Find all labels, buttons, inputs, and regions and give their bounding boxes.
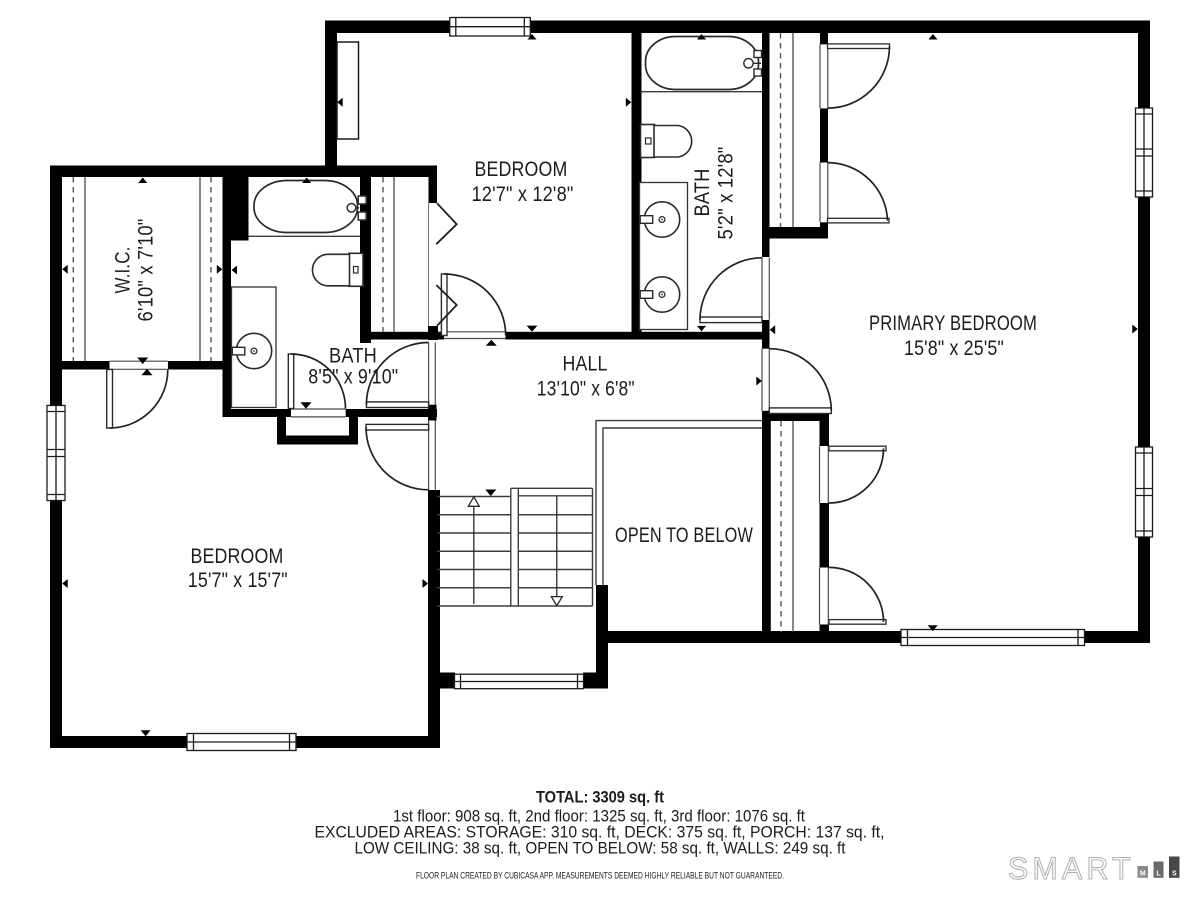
svg-text:BEDROOM: BEDROOM <box>191 544 284 568</box>
svg-text:TOTAL: 3309 sq. ft: TOTAL: 3309 sq. ft <box>536 788 664 807</box>
svg-text:L: L <box>1156 870 1161 877</box>
svg-text:FLOOR PLAN CREATED BY CUBICASA: FLOOR PLAN CREATED BY CUBICASA APP. MEAS… <box>416 871 784 881</box>
svg-text:12'7" x 12'8": 12'7" x 12'8" <box>472 182 574 206</box>
svg-text:13'10" x 6'8": 13'10" x 6'8" <box>537 377 635 401</box>
svg-text:PRIMARY BEDROOM: PRIMARY BEDROOM <box>869 311 1037 335</box>
svg-text:15'8" x 25'5": 15'8" x 25'5" <box>904 336 1004 360</box>
svg-text:15'7" x 15'7": 15'7" x 15'7" <box>188 568 288 592</box>
svg-text:8'5" x 9'10": 8'5" x 9'10" <box>308 365 398 389</box>
svg-text:SMART: SMART <box>1008 850 1135 886</box>
svg-text:5'2" x 12'8": 5'2" x 12'8" <box>714 147 738 240</box>
svg-text:6'10" x 7'10": 6'10" x 7'10" <box>134 219 158 322</box>
svg-text:OPEN TO BELOW: OPEN TO BELOW <box>615 523 753 547</box>
svg-text:S: S <box>1172 870 1177 877</box>
svg-text:M: M <box>1140 870 1146 877</box>
svg-text:BEDROOM: BEDROOM <box>475 157 568 181</box>
svg-text:BATH: BATH <box>690 169 714 217</box>
svg-text:LOW CEILING: 38 sq. ft, OPEN T: LOW CEILING: 38 sq. ft, OPEN TO BELOW: 5… <box>355 840 846 858</box>
svg-text:HALL: HALL <box>563 352 608 376</box>
svg-text:W.I.C.: W.I.C. <box>111 247 135 294</box>
